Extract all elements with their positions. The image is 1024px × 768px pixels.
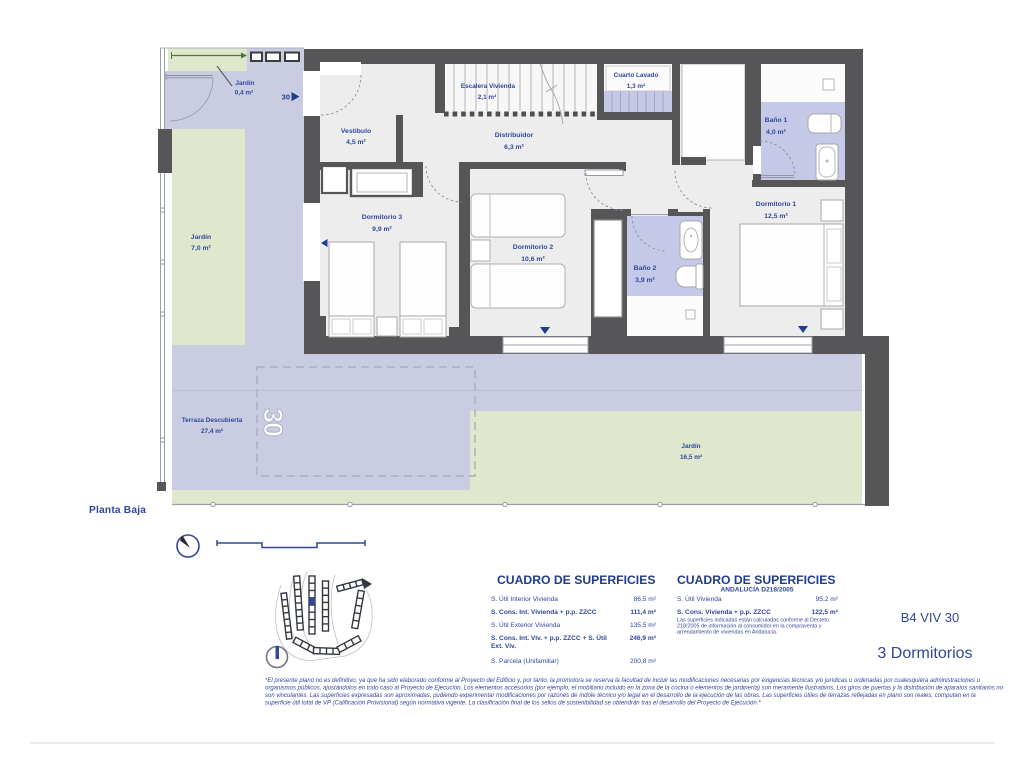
svg-text:10,6 m²: 10,6 m² xyxy=(521,256,545,263)
svg-text:7,0 m²: 7,0 m² xyxy=(191,245,211,252)
svg-text:246,9 m²: 246,9 m² xyxy=(630,635,657,642)
svg-text:ANDALUCÍA D218/2005: ANDALUCÍA D218/2005 xyxy=(720,585,793,594)
svg-text:Jardín: Jardín xyxy=(235,80,254,87)
svg-text:Jardín: Jardín xyxy=(191,234,211,241)
svg-text:200,8 m²: 200,8 m² xyxy=(630,658,657,665)
svg-text:S. Cons. Vivienda + p.p. ZZCC: S. Cons. Vivienda + p.p. ZZCC xyxy=(677,609,771,616)
svg-text:Baño 2: Baño 2 xyxy=(634,265,657,272)
svg-text:9,9 m²: 9,9 m² xyxy=(372,226,392,233)
svg-text:S. Útil Exterior Vivienda: S. Útil Exterior Vivienda xyxy=(491,620,560,629)
svg-text:3 Dormitorios: 3 Dormitorios xyxy=(877,645,972,662)
svg-text:30: 30 xyxy=(282,93,290,102)
svg-text:6,3 m²: 6,3 m² xyxy=(504,144,524,151)
svg-text:Cuarto Lavado: Cuarto Lavado xyxy=(614,72,659,79)
svg-text:Distribuidor: Distribuidor xyxy=(495,132,534,139)
svg-text:Planta Baja: Planta Baja xyxy=(89,505,146,516)
svg-text:*El presente plano no es defin: *El presente plano no es definitivo, ya … xyxy=(265,678,981,684)
svg-text:Dormitorio 1: Dormitorio 1 xyxy=(756,201,797,208)
svg-text:organismos públicos, ajustándo: organismos públicos, ajustándolos en tod… xyxy=(265,686,1004,692)
svg-text:0,4 m²: 0,4 m² xyxy=(235,90,253,97)
svg-text:son vinculantes. Las superfici: son vinculantes. Las superficies expresa… xyxy=(265,693,976,699)
svg-text:2,1 m²: 2,1 m² xyxy=(478,94,496,101)
svg-text:Dormitorio 2: Dormitorio 2 xyxy=(513,244,554,251)
svg-text:86,5 m²: 86,5 m² xyxy=(634,596,657,603)
svg-text:4,0 m²: 4,0 m² xyxy=(766,129,786,136)
svg-text:3,9 m²: 3,9 m² xyxy=(635,277,655,284)
svg-text:Escalera Vivienda: Escalera Vivienda xyxy=(461,83,516,90)
svg-text:CUADRO DE SUPERFICIES: CUADRO DE SUPERFICIES xyxy=(677,573,835,587)
svg-text:30: 30 xyxy=(258,408,288,436)
svg-text:135,5 m²: 135,5 m² xyxy=(630,622,657,629)
svg-text:B4 VIV 30: B4 VIV 30 xyxy=(901,610,960,625)
svg-text:111,4 m²: 111,4 m² xyxy=(630,609,656,616)
svg-text:Baño 1: Baño 1 xyxy=(765,117,788,124)
svg-text:27,4 m²: 27,4 m² xyxy=(201,428,223,435)
svg-text:S. Cons. Int. Vivienda + p.p.: S. Cons. Int. Vivienda + p.p. ZZCC xyxy=(491,609,597,616)
svg-text:S. Útil Vivienda: S. Útil Vivienda xyxy=(677,594,722,603)
svg-text:16,5 m²: 16,5 m² xyxy=(680,454,702,461)
svg-text:S. Parcela (Unifamiliar): S. Parcela (Unifamiliar) xyxy=(491,658,559,665)
svg-text:1,3 m²: 1,3 m² xyxy=(627,83,645,90)
svg-text:superficie útil total de VP (C: superficie útil total de VP (Calificació… xyxy=(265,701,761,707)
svg-text:4,5 m²: 4,5 m² xyxy=(346,139,366,146)
svg-text:arrendamiento de viviendas en: arrendamiento de viviendas en Andalucía. xyxy=(677,630,777,636)
svg-text:Vestibulo: Vestibulo xyxy=(341,128,371,135)
svg-text:CUADRO DE SUPERFICIES: CUADRO DE SUPERFICIES xyxy=(497,573,655,587)
svg-text:95,2 m²: 95,2 m² xyxy=(816,596,839,603)
svg-text:S. Cons. Int. Viv. + p.p. ZZCC: S. Cons. Int. Viv. + p.p. ZZCC + S. Útil xyxy=(491,633,607,642)
svg-text:Terraza Descubierta: Terraza Descubierta xyxy=(182,417,243,424)
svg-text:122,5 m²: 122,5 m² xyxy=(812,609,839,616)
svg-text:Jardín: Jardín xyxy=(681,443,700,450)
svg-text:Dormitorio 3: Dormitorio 3 xyxy=(362,214,403,221)
svg-text:Ext. Viv.: Ext. Viv. xyxy=(491,643,516,650)
svg-text:12,5 m²: 12,5 m² xyxy=(764,213,788,220)
svg-text:S. Útil Interior Vivienda: S. Útil Interior Vivienda xyxy=(491,594,558,603)
